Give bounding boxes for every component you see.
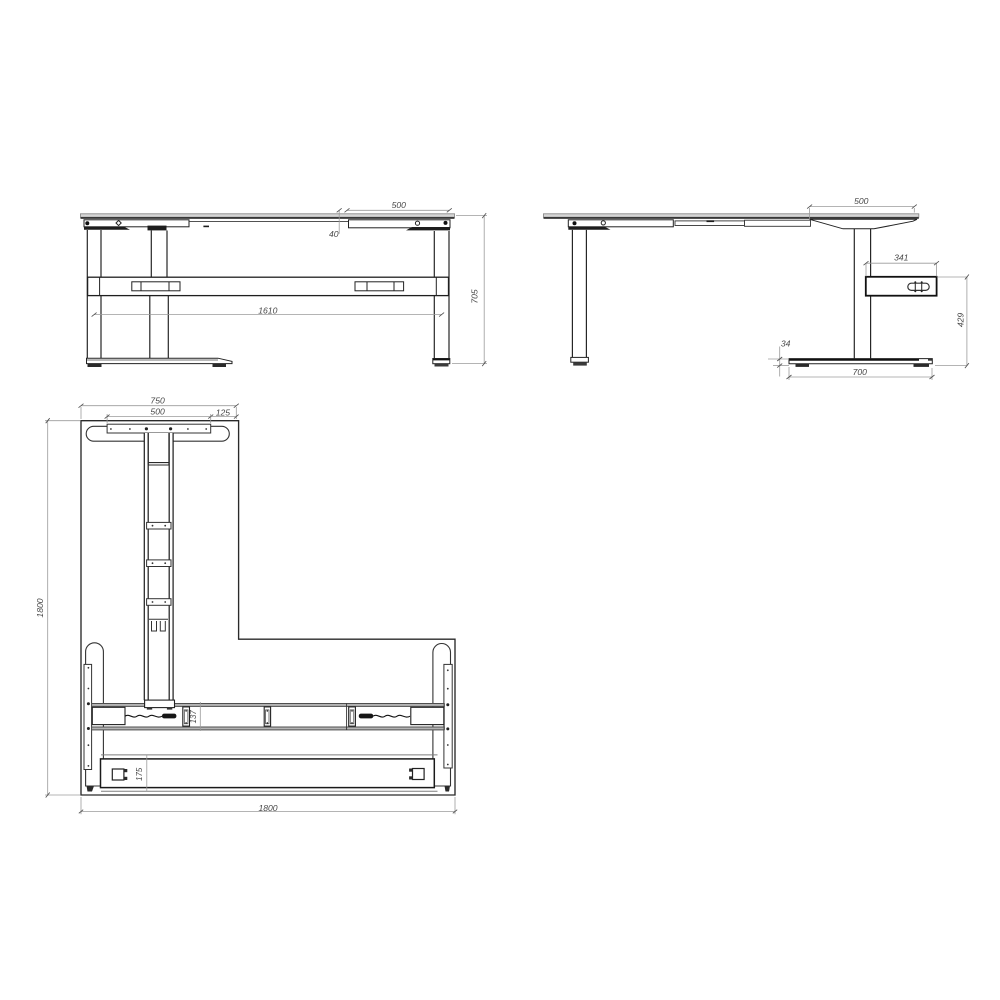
svg-text:500: 500 — [392, 200, 407, 210]
svg-text:1800: 1800 — [258, 803, 277, 813]
svg-text:500: 500 — [854, 196, 869, 206]
svg-text:429: 429 — [955, 313, 965, 328]
svg-text:34: 34 — [781, 338, 791, 348]
svg-text:750: 750 — [150, 396, 165, 406]
svg-text:705: 705 — [470, 289, 480, 304]
svg-text:125: 125 — [216, 407, 231, 417]
svg-text:1610: 1610 — [258, 306, 277, 316]
svg-text:40: 40 — [329, 229, 339, 239]
svg-text:175: 175 — [135, 767, 144, 781]
svg-text:341: 341 — [894, 253, 909, 263]
svg-text:500: 500 — [150, 406, 165, 416]
svg-text:137: 137 — [189, 710, 198, 724]
svg-text:700: 700 — [853, 367, 868, 377]
svg-text:1800: 1800 — [35, 598, 45, 617]
